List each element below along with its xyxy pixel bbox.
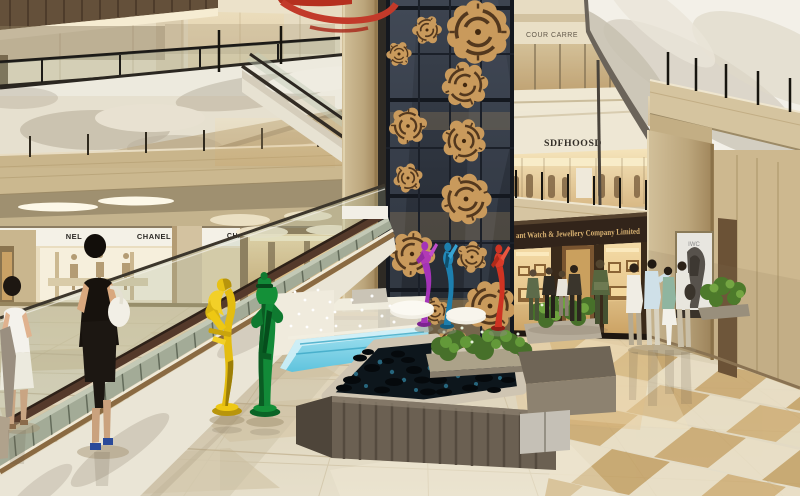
svg-text:NEL: NEL [66,232,83,241]
svg-text:CHANEL: CHANEL [137,232,171,241]
svg-text:COUR CARRE: COUR CARRE [526,32,578,39]
svg-text:SDFHOOSD: SDFHOOSD [544,139,602,149]
